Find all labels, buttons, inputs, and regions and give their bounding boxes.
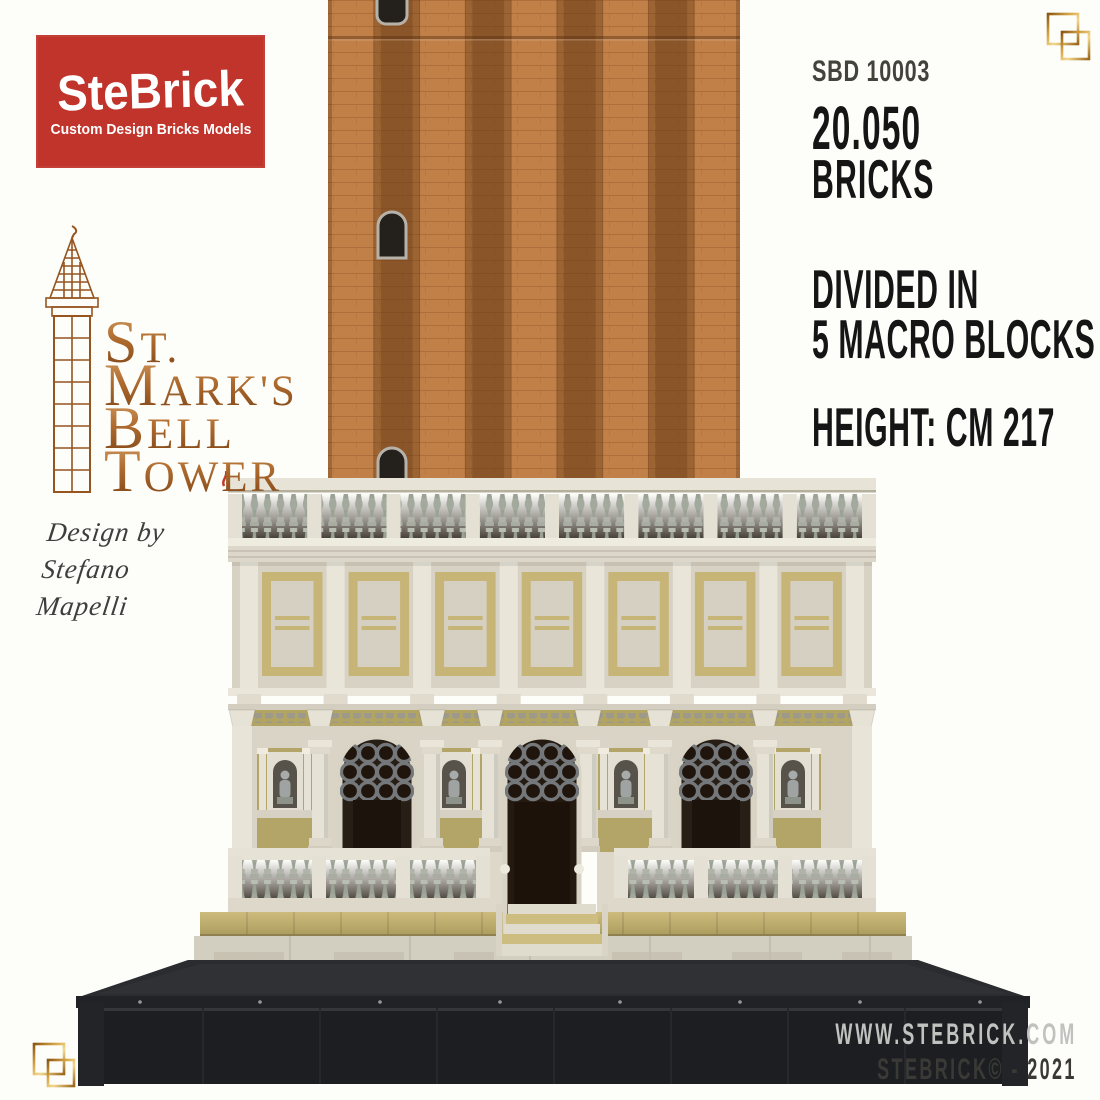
terrace-balustrade — [223, 471, 876, 562]
upper-story — [232, 562, 872, 688]
divided-line-2: 5 MACRO BLOCKS — [812, 312, 1095, 367]
tower-shaft — [328, 0, 740, 486]
cornice — [228, 688, 876, 710]
product-code: SBD 10003 — [812, 57, 930, 87]
designer-credit: Design by Stefano Mapelli — [34, 514, 167, 625]
gold-panels — [262, 572, 842, 676]
website-url: WWW.STEBRICK.COM — [835, 1020, 1077, 1050]
corner-ornament-bottom-left-icon — [4, 1018, 254, 1098]
steps — [496, 904, 608, 956]
corner-ornament-top-right-icon — [1000, 12, 1092, 112]
frieze — [229, 710, 875, 728]
brand-logo-box: SteBrick Custom Design Bricks Models — [36, 35, 265, 168]
bricks-label: BRICKS — [812, 152, 935, 207]
model-height: HEIGHT: CM 217 — [812, 400, 1055, 455]
brand-subtitle: Custom Design Bricks Models — [50, 122, 251, 137]
poster: { "palette": { "background": "#fdfdfa", … — [0, 0, 1100, 1100]
bell-tower-icon — [40, 224, 104, 496]
brand-title: SteBrick — [57, 63, 245, 118]
copyright: STEBRICK© - 2021 — [877, 1055, 1077, 1085]
title-line-tower: TOWER — [104, 441, 282, 501]
